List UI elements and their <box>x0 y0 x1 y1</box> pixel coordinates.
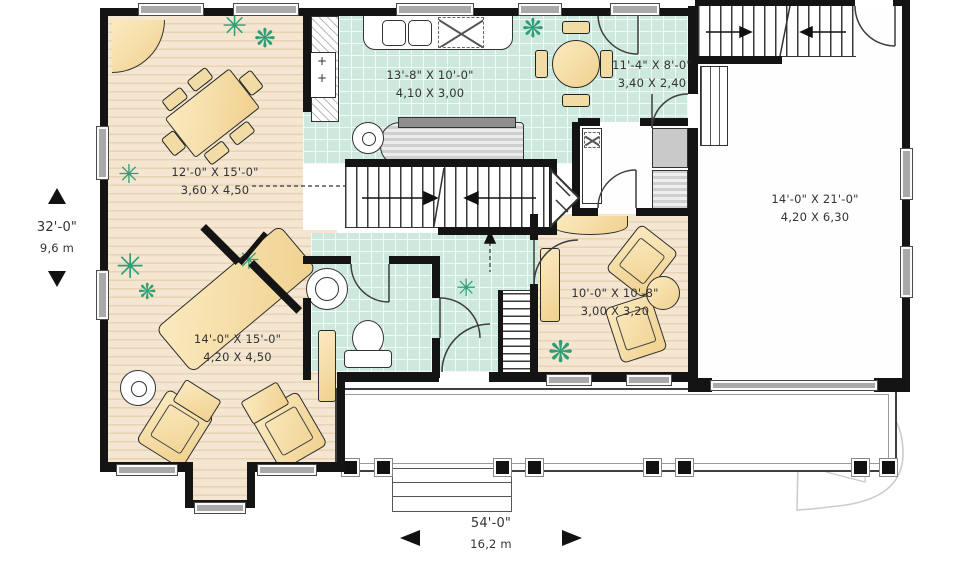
bathroom-wall-top <box>389 256 433 264</box>
front-wall <box>337 372 439 382</box>
width-metric: 16,2 m <box>426 535 556 553</box>
bath-foyer-divider <box>432 338 440 378</box>
foyer-den-divider <box>530 284 538 378</box>
window <box>257 464 317 476</box>
front-wall-jog <box>337 372 345 470</box>
kitchen-sink <box>382 20 406 46</box>
stove-burner-icon: + <box>317 71 327 85</box>
garage-dim-imperial: 14'-0" X 21'-0" <box>725 190 905 208</box>
plant-icon: ✳ <box>116 250 145 284</box>
corner-sink-basin <box>315 277 339 301</box>
bathroom-wall-top <box>303 256 351 264</box>
window <box>518 3 562 16</box>
main-staircase <box>345 167 549 228</box>
kitchen-window <box>396 3 474 16</box>
floor-plan: + + ❋ ✳ ❋ ✳ ✳ ❋ ✳ <box>0 0 960 569</box>
arrow-left-icon <box>400 530 420 546</box>
plant-icon: ✳ <box>222 12 247 42</box>
plant-icon: ❋ <box>548 338 573 368</box>
breakfast-wall-bottom <box>640 118 688 126</box>
arrow-up-icon <box>48 188 66 204</box>
porch-steps <box>392 468 512 512</box>
kitchen-dimensions: 13'-8" X 10'-0" 4,10 X 3,00 <box>340 66 520 103</box>
kitchen-dim-imperial: 13'-8" X 10'-0" <box>340 66 520 84</box>
utility-wall-left <box>572 122 580 216</box>
porch-inner-line <box>341 394 889 464</box>
breakfast-dim-imperial: 11'-4" X 8'-0" <box>592 56 712 74</box>
window <box>546 374 592 386</box>
den-dim-metric: 3,00 X 3,20 <box>545 302 685 320</box>
side-table <box>352 122 384 154</box>
arrow-right-icon <box>562 530 582 546</box>
dining-dim-imperial: 12'-0" X 15'-0" <box>130 163 300 181</box>
garage-wall-bottom <box>688 378 712 392</box>
dishwasher-icon <box>438 17 484 48</box>
window <box>900 246 913 298</box>
plant-icon: ❋ <box>138 282 156 304</box>
stair-wall-bottom <box>438 227 550 235</box>
living-dim-metric: 4,20 X 4,50 <box>150 348 325 366</box>
bay-window-floor <box>190 462 248 500</box>
bay-window <box>194 502 246 514</box>
furnace <box>652 170 688 210</box>
porch-post <box>344 461 357 474</box>
den-dim-imperial: 10'-0" X 10'-8" <box>545 284 685 302</box>
chair <box>562 21 590 34</box>
stove-burner-icon: + <box>317 54 327 68</box>
arrow-down-icon <box>48 271 66 287</box>
garage-wall-bottom <box>874 378 910 392</box>
kitchen-dining-stub-wall <box>303 16 311 112</box>
den-dimensions: 10'-0" X 10'-8" 3,00 X 3,20 <box>545 284 685 321</box>
sofa-cushions <box>398 117 516 128</box>
garage-dim-metric: 4,20 X 6,30 <box>725 208 905 226</box>
plant-icon: ❋ <box>254 26 276 52</box>
dining-dim-metric: 3,60 X 4,50 <box>130 181 300 199</box>
den-wall-top <box>636 208 688 216</box>
depth-imperial: 32'-0" <box>18 218 96 239</box>
plant-icon: ❋ <box>522 16 544 42</box>
washer-icon <box>584 132 600 148</box>
round-table <box>120 370 156 406</box>
living-dimensions: 14'-0" X 15'-0" 4,20 X 4,50 <box>150 330 325 367</box>
garage-wall-top <box>695 0 855 6</box>
stair-wall-right <box>549 159 557 235</box>
porch-post <box>496 461 509 474</box>
console-table <box>552 216 628 235</box>
toilet-tank <box>344 350 392 368</box>
garage-door <box>710 380 878 391</box>
breakfast-wall-bottom <box>578 118 600 126</box>
breakfast-dimensions: 11'-4" X 8'-0" 3,40 X 2,40 <box>592 56 712 93</box>
porch-post <box>678 461 691 474</box>
porch-post <box>528 461 541 474</box>
kitchen-garage-divider <box>688 128 698 382</box>
breakfast-dim-metric: 3,40 X 2,40 <box>592 74 712 92</box>
bay-wall-right <box>247 462 255 506</box>
dining-dimensions: 12'-0" X 15'-0" 3,60 X 4,50 <box>130 163 300 200</box>
stair-wall-top <box>345 159 557 167</box>
porch-post <box>854 461 867 474</box>
window <box>233 3 299 16</box>
window <box>116 464 178 476</box>
overall-width-dimension: 54'-0" 16,2 m <box>426 514 556 553</box>
garage-dimensions: 14'-0" X 21'-0" 4,20 X 6,30 <box>725 190 905 227</box>
refrigerator <box>652 128 688 168</box>
window <box>626 374 672 386</box>
chair <box>535 50 548 78</box>
depth-metric: 9,6 m <box>18 239 96 257</box>
den-wall-top <box>578 208 598 216</box>
bath-foyer-divider <box>432 256 440 298</box>
porch-post <box>377 461 390 474</box>
kitchen-sink <box>408 20 432 46</box>
window <box>96 126 109 180</box>
overall-depth-dimension: 32'-0" 9,6 m <box>18 188 96 287</box>
width-imperial: 54'-0" <box>426 514 556 535</box>
window <box>610 3 660 16</box>
porch-post <box>646 461 659 474</box>
garage-staircase <box>698 6 856 57</box>
porch-post <box>882 461 895 474</box>
stove: + + <box>308 52 336 98</box>
chair <box>562 94 590 107</box>
kitchen-dim-metric: 4,10 X 3,00 <box>340 84 520 102</box>
window <box>138 3 204 16</box>
living-dim-imperial: 14'-0" X 15'-0" <box>150 330 325 348</box>
plant-icon: ✳ <box>456 276 476 300</box>
exterior-wall-left <box>100 8 108 470</box>
window <box>96 270 109 320</box>
